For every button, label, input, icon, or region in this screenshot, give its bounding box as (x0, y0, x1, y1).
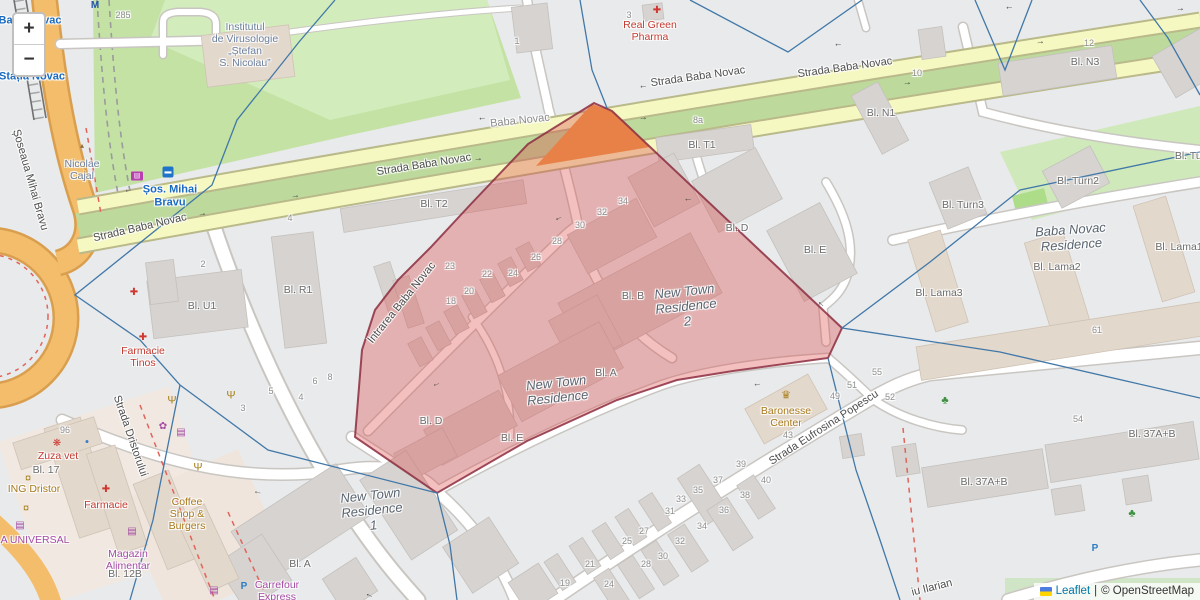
leaflet-map[interactable]: Strada Baba NovacStrada Baba NovacStrada… (0, 0, 1200, 600)
osm-attribution: © OpenStreetMap (1101, 585, 1194, 597)
basemap-tiles (0, 0, 1200, 600)
leaflet-link[interactable]: Leaflet (1056, 585, 1091, 597)
zoom-in-button[interactable]: + (14, 14, 44, 44)
zoom-out-button[interactable]: − (14, 44, 44, 75)
ukraine-flag-icon (1040, 587, 1052, 596)
attribution-separator: | (1094, 585, 1097, 597)
zoom-control: + − (12, 12, 46, 77)
attribution-bar: Leaflet | © OpenStreetMap (1034, 583, 1200, 600)
